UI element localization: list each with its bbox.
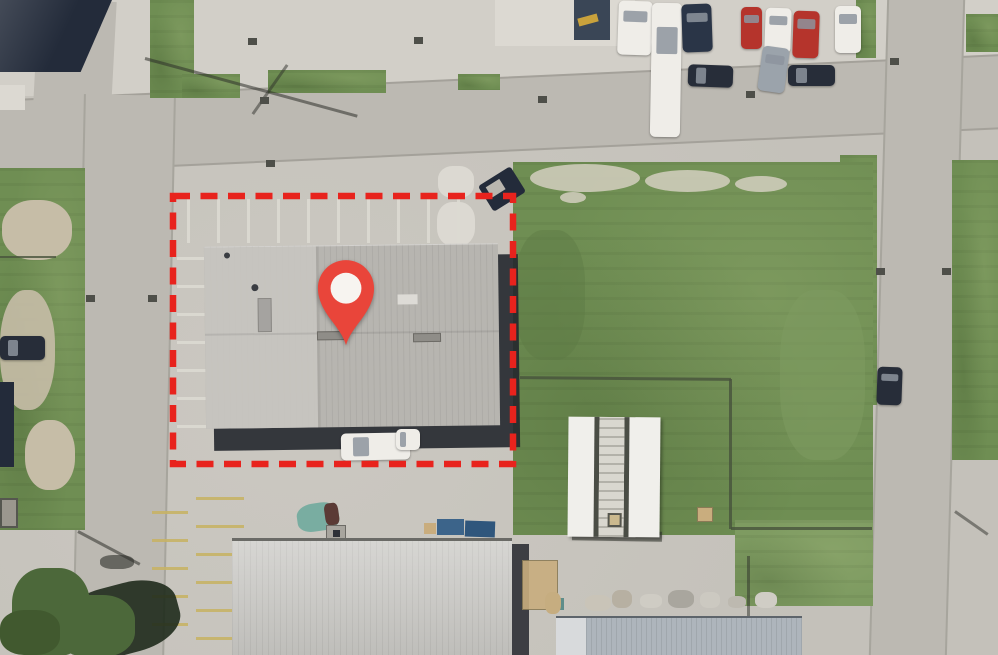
vehicle-dark-sedan-street-2 xyxy=(788,65,835,86)
vehicle-white-car-north-2 xyxy=(835,6,861,53)
vehicle-window xyxy=(881,374,899,382)
vehicle-window xyxy=(656,27,677,54)
satellite-map[interactable] xyxy=(0,0,998,655)
pin-dot xyxy=(331,273,362,304)
vehicle-window xyxy=(8,340,18,357)
vehicle-red-pickup-north xyxy=(741,7,762,49)
vehicle-window xyxy=(797,19,816,29)
vehicle-window xyxy=(400,432,405,447)
vehicle-dark-car-east-road xyxy=(876,367,902,406)
vehicle-window xyxy=(623,10,647,22)
vehicle-white-car-at-building xyxy=(396,429,420,450)
vehicles-layer xyxy=(0,0,998,655)
vehicle-dark-sedan-street-1 xyxy=(688,64,734,88)
location-pin-icon[interactable] xyxy=(317,256,375,356)
vehicle-silver-car-street xyxy=(757,45,790,93)
vehicle-white-rv-north xyxy=(617,0,653,55)
vehicle-window xyxy=(353,437,368,456)
vehicle-window xyxy=(769,16,788,26)
vehicle-window xyxy=(765,54,785,66)
vehicle-window xyxy=(839,14,857,23)
vehicle-white-trailer-north xyxy=(650,3,682,138)
vehicle-window xyxy=(796,68,806,83)
vehicle-window xyxy=(686,12,707,22)
vehicle-window xyxy=(696,68,706,84)
vehicle-dark-suv-north xyxy=(681,3,713,52)
vehicle-dark-car-west xyxy=(0,336,45,360)
vehicle-window xyxy=(744,15,759,23)
vehicle-red-car-north xyxy=(792,11,820,59)
